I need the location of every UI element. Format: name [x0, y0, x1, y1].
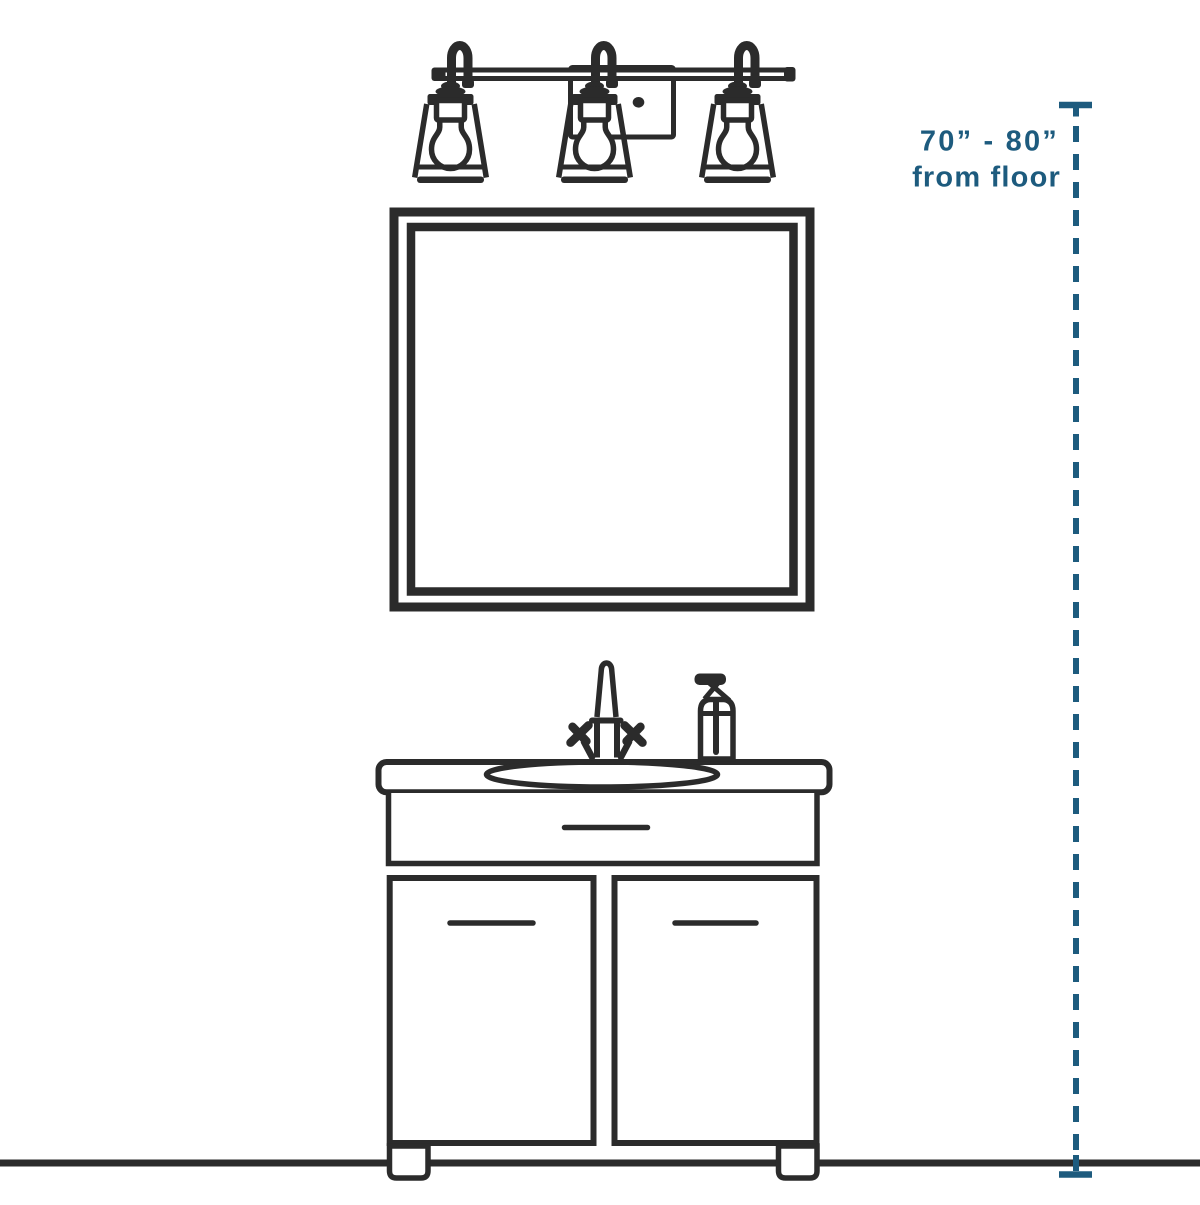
svg-text:70” - 80”: 70” - 80”	[920, 126, 1059, 158]
svg-text:from floor: from floor	[912, 162, 1061, 194]
